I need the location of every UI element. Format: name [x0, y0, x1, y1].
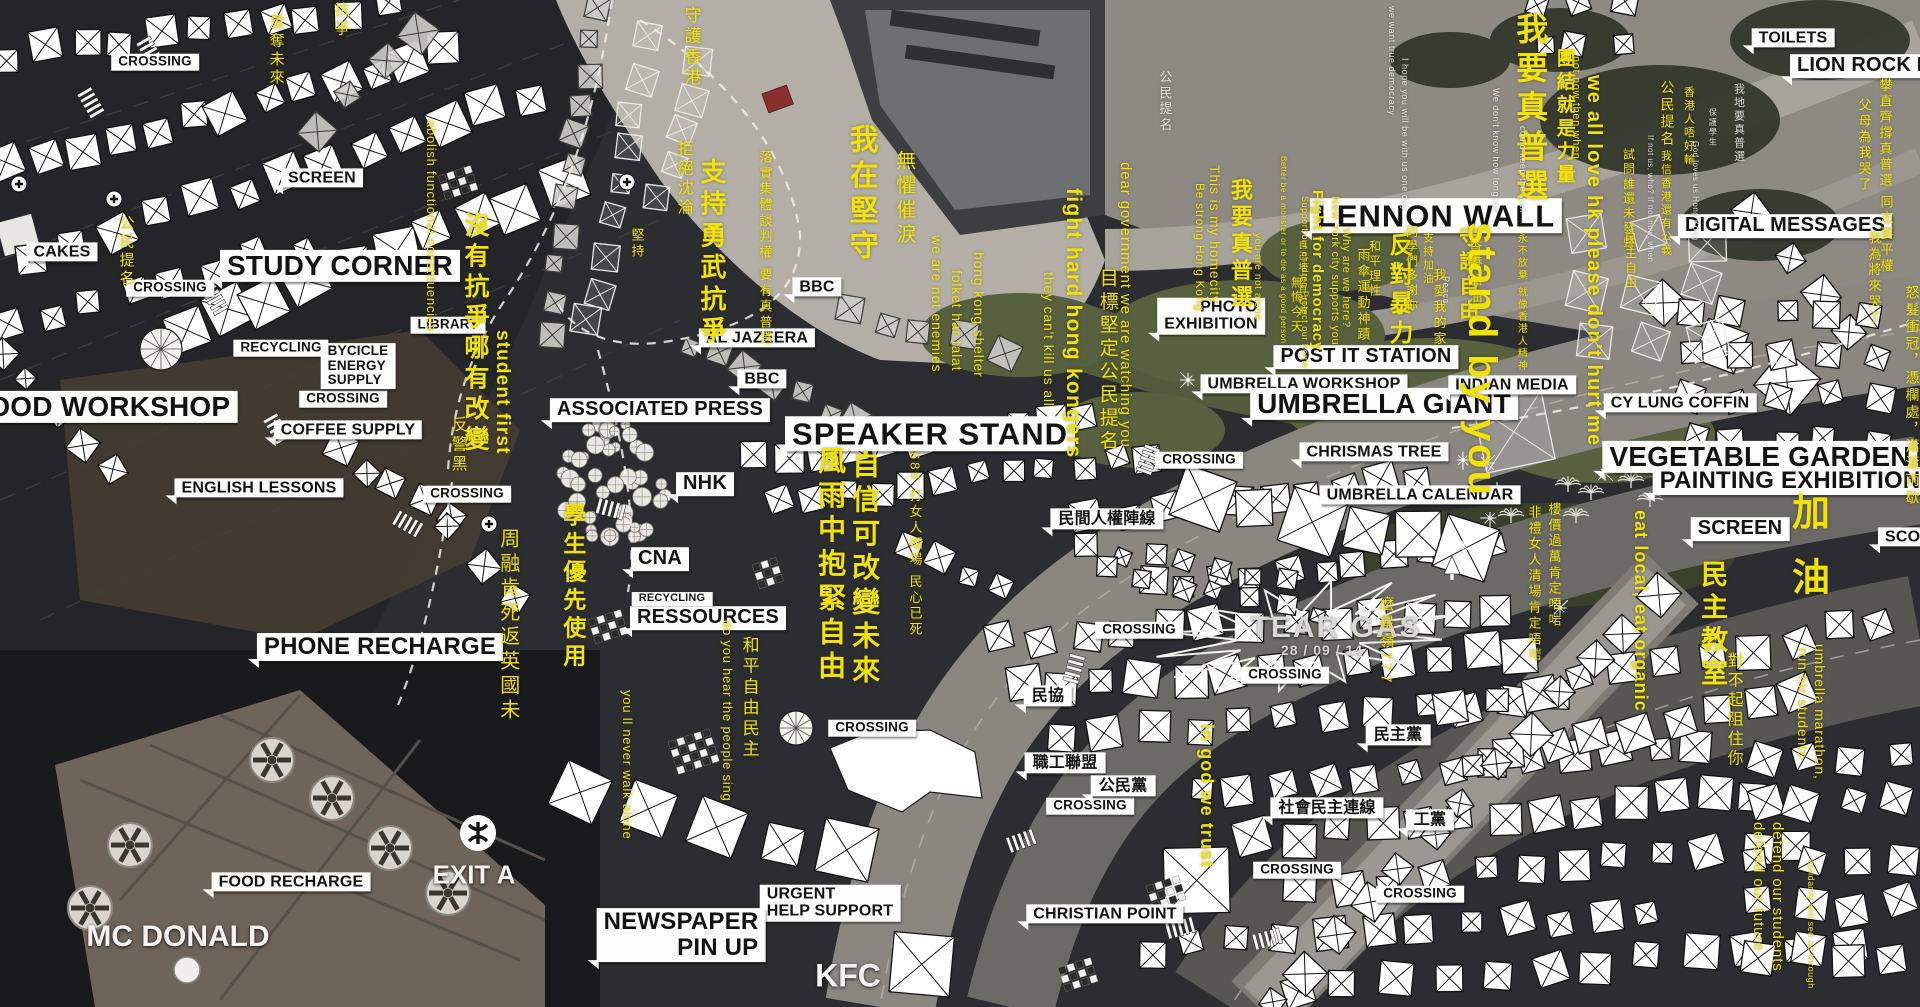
tent-icon — [322, 429, 360, 467]
tent-icon — [1097, 556, 1118, 577]
tent-icon — [1140, 942, 1167, 969]
tent-icon — [1210, 558, 1232, 580]
tent-icon — [553, 223, 580, 250]
supplies-icon — [752, 557, 784, 589]
tent-icon — [1089, 669, 1113, 693]
tent-icon — [1791, 931, 1827, 967]
tent-icon — [875, 313, 899, 337]
tent-icon — [806, 438, 840, 472]
tent-icon — [278, 253, 333, 308]
zebra-crossing-icon — [1006, 829, 1037, 853]
tent-icon — [1132, 569, 1151, 588]
tent-icon — [1589, 898, 1624, 933]
tent-icon — [1862, 609, 1895, 642]
zebra-crossing-icon — [595, 498, 626, 521]
tent-icon — [616, 102, 642, 128]
rooftop-fan-icon — [310, 776, 354, 820]
tent-icon — [1687, 833, 1726, 872]
tent-icon — [40, 305, 67, 332]
tent-icon — [1794, 887, 1829, 922]
tent-icon — [95, 211, 139, 255]
tent-icon — [1856, 302, 1882, 328]
tent-icon — [1339, 551, 1366, 578]
tent-icon — [1122, 658, 1162, 698]
first-aid-icon — [481, 516, 497, 532]
tent-icon — [897, 472, 924, 499]
tent-icon — [906, 320, 930, 344]
tent-icon — [591, 243, 620, 272]
tent-icon — [262, 150, 307, 195]
tent-icon — [1620, 275, 1661, 316]
umbrella-art-icon — [569, 493, 586, 510]
tent-icon — [1362, 460, 1400, 498]
tent-icon — [1283, 868, 1317, 902]
palm-tree-icon — [1618, 473, 1644, 488]
tent-icon — [1331, 473, 1362, 504]
tent-icon — [1650, 646, 1681, 677]
tent-icon — [967, 460, 990, 483]
tent-icon — [1742, 848, 1767, 873]
tent-icon — [1318, 701, 1350, 733]
tent-icon — [894, 531, 924, 561]
tent-icon — [1876, 944, 1907, 975]
tent-icon — [1864, 344, 1891, 371]
protest-camp-map: TEAR GAS 28 / 09 / 14 CROSSINGCROSSINGCR… — [0, 0, 1920, 1007]
tent-icon — [15, 243, 47, 275]
palm-tree-icon — [1578, 485, 1604, 500]
tent-icon — [1566, 213, 1606, 253]
map-symbols — [0, 0, 1920, 1007]
first-aid-icon — [106, 191, 122, 207]
tent-icon — [303, 144, 344, 185]
tent-icon — [1744, 886, 1772, 914]
tent-icon — [1432, 689, 1468, 725]
tent-icon — [48, 406, 71, 429]
tent-icon — [122, 276, 150, 304]
tent-icon — [1462, 912, 1482, 932]
tent-icon — [545, 254, 563, 272]
tent-icon — [1033, 458, 1054, 479]
tent-icon — [1105, 444, 1130, 469]
umbrella-art-icon — [653, 494, 668, 509]
rooftop-fan-icon — [108, 823, 152, 867]
tent-icon — [958, 566, 979, 587]
tent-icon — [1146, 544, 1167, 565]
tent-icon — [705, 338, 733, 366]
umbrella-art-icon — [656, 478, 667, 489]
tent-icon — [1579, 952, 1612, 985]
tent-icon — [1558, 849, 1591, 882]
tent-icon — [1600, 842, 1626, 868]
tent-icon — [1887, 844, 1919, 876]
tent-icon — [1577, 323, 1613, 359]
big-umbrella-icon — [779, 711, 813, 745]
tent-icon — [1475, 856, 1498, 879]
tent-icon — [835, 294, 865, 324]
tent-icon — [1699, 642, 1726, 669]
palm-tree-icon — [1563, 508, 1589, 523]
tent-icon — [1035, 404, 1068, 437]
tent-icon — [1005, 663, 1043, 701]
tent-icon — [1631, 322, 1670, 361]
tent-icon — [255, 83, 285, 113]
supplies-icon — [588, 609, 628, 643]
umbrella-art-icon — [633, 487, 652, 506]
tent-icon — [569, 95, 592, 118]
tent-icon — [1781, 784, 1820, 823]
tent-icon — [1817, 380, 1843, 406]
tent-icon — [1257, 653, 1286, 682]
rooftop-fan-icon — [368, 826, 412, 870]
tent-icon — [142, 118, 174, 150]
tent-icon — [928, 466, 958, 496]
tent-icon — [1276, 568, 1298, 590]
sparkle-icon — [1598, 466, 1613, 480]
tent-icon — [1024, 626, 1057, 659]
tent-icon — [1630, 215, 1667, 252]
red-canopy — [762, 85, 793, 113]
rooftop-fan-icon — [250, 738, 294, 782]
tent-icon — [548, 760, 613, 825]
umbrella-art-icon — [586, 530, 598, 542]
tent-icon — [685, 795, 748, 858]
tent-icon — [1684, 423, 1709, 448]
umbrella-art-icon — [571, 452, 587, 468]
tent-icon — [1169, 464, 1237, 532]
tent-icon — [792, 381, 814, 403]
tent-icon — [1811, 426, 1834, 449]
tent-icon — [1362, 696, 1393, 727]
tent-icon — [1282, 824, 1317, 859]
supplies-icon — [1058, 957, 1098, 991]
tent-icon — [1483, 961, 1512, 990]
tent-icon — [1611, 0, 1640, 16]
tent-icon — [515, 85, 547, 117]
tent-icon — [761, 822, 806, 867]
tent-icon — [500, 583, 531, 614]
sparkle-icon — [1457, 452, 1474, 470]
tent-icon — [1537, 37, 1555, 55]
tent-icon — [1791, 742, 1820, 771]
tent-icon — [180, 177, 219, 216]
tent-icon — [1736, 635, 1771, 670]
rooftop-vent-icon — [174, 957, 200, 983]
tent-icon — [334, 2, 362, 30]
tent-icon — [202, 90, 248, 136]
umbrella-art-icon — [636, 444, 654, 462]
tent-icon — [1426, 646, 1452, 672]
tent-icon — [1776, 671, 1818, 713]
tent-icon — [1500, 637, 1538, 675]
tent-icon — [1825, 610, 1854, 639]
tent-icon — [740, 441, 767, 468]
tent-icon — [757, 370, 787, 400]
tent-icon — [1499, 900, 1536, 937]
tent-icon — [923, 541, 957, 575]
tent-icon — [1775, 243, 1806, 274]
tent-icon — [1528, 795, 1567, 834]
tent-icon — [187, 16, 211, 40]
tent-icon — [75, 29, 101, 55]
palm-tree-icon — [1555, 477, 1581, 492]
tent-icon — [727, 350, 762, 385]
tent-icon — [836, 430, 870, 464]
tent-icon — [675, 84, 709, 118]
tent-icon — [1226, 708, 1251, 733]
tent-icon — [867, 430, 896, 459]
tent-icon — [1572, 717, 1609, 754]
tent-icon — [815, 818, 880, 883]
tent-icon — [680, 337, 700, 357]
tent-icon — [1560, 31, 1586, 57]
big-umbrella-icon — [140, 328, 182, 370]
tent-icon — [1841, 787, 1868, 814]
tent-icon — [1727, 342, 1753, 368]
tent-icon — [558, 118, 589, 149]
tent-icon — [339, 246, 370, 277]
tent-icon — [633, 21, 662, 50]
tent-icon — [1085, 714, 1123, 752]
umbrella-art-icon — [582, 424, 595, 437]
tent-icon — [1403, 467, 1431, 495]
tent-icon — [1317, 561, 1339, 583]
tent-icon — [1882, 881, 1919, 918]
umbrella-art-icon — [604, 530, 616, 542]
tent-icon — [539, 322, 566, 349]
zebra-crossing-icon — [1063, 653, 1086, 684]
tent-icon — [986, 335, 1023, 372]
tent-icon — [976, 418, 1001, 443]
palm-tree-icon — [1637, 492, 1663, 507]
tent-icon — [1778, 301, 1798, 321]
tent-icon — [1731, 192, 1772, 233]
umbrella-art-icon — [640, 523, 654, 537]
tent-icon — [871, 483, 894, 506]
sparkle-icon — [1552, 600, 1567, 615]
tent-icon — [1463, 630, 1502, 669]
tent-icon — [229, 179, 260, 210]
tent-icon — [1681, 263, 1722, 304]
tent-icon — [1564, 0, 1591, 16]
tent-icon — [1187, 720, 1213, 746]
tent-icon — [643, 184, 669, 210]
rooftop-fan-icon — [68, 886, 112, 930]
tent-icon — [983, 620, 1015, 652]
tent-icon — [1688, 224, 1726, 262]
umbrella-art-icon — [616, 517, 631, 532]
tent-icon — [1716, 428, 1744, 456]
tent-icon — [797, 485, 826, 514]
tent-icon — [1418, 860, 1451, 893]
tent-icon — [1324, 814, 1350, 840]
tent-icon — [107, 32, 132, 57]
tent-icon — [291, 6, 319, 34]
palm-tree-icon — [1498, 508, 1524, 523]
tent-icon — [1565, 271, 1608, 314]
umbrella-art-icon — [571, 477, 586, 492]
supplies-icon — [668, 729, 719, 775]
tent-icon — [1835, 746, 1865, 776]
tent-icon — [1224, 925, 1248, 949]
tent-icon — [1879, 781, 1914, 816]
main-stage — [830, 730, 982, 812]
tent-icon — [1546, 910, 1574, 938]
tent-icon — [1047, 724, 1075, 752]
sparkle-icon — [1180, 372, 1195, 387]
tent-icon — [1766, 339, 1797, 370]
tent-icon — [1745, 686, 1779, 720]
tent-icon — [889, 932, 954, 997]
tent-icon — [1740, 941, 1775, 976]
umbrella-art-icon — [588, 468, 602, 482]
tent-icon — [1864, 431, 1891, 458]
tent-icon — [1832, 945, 1865, 978]
tent-icon — [1117, 505, 1143, 531]
tent-icon — [988, 573, 1014, 599]
tent-icon — [0, 49, 18, 72]
tent-icon — [409, 483, 442, 516]
zebra-crossing-icon — [263, 413, 291, 445]
tent-icon — [584, 0, 611, 21]
tent-icon — [1397, 759, 1423, 785]
tent-icon — [1697, 775, 1733, 811]
tent-icon — [1074, 533, 1097, 556]
tent-icon — [1068, 498, 1103, 533]
tent-icon — [1395, 511, 1441, 557]
tent-icon — [1782, 625, 1817, 660]
tent-icon — [1632, 941, 1659, 968]
tent-icon — [375, 0, 402, 16]
tent-icon — [1172, 549, 1195, 572]
tent-icon — [1206, 654, 1247, 695]
tent-icon — [1813, 301, 1841, 329]
tent-icon — [1328, 970, 1354, 996]
tent-icon — [838, 402, 873, 437]
tent-icon — [1865, 383, 1896, 414]
tent-icon — [1139, 710, 1171, 742]
tent-icon — [466, 548, 502, 584]
tent-icon — [0, 307, 25, 340]
tent-icon — [1746, 741, 1783, 778]
rooftop-fan-icon — [426, 871, 470, 915]
tent-icon — [239, 236, 267, 264]
tent-icon — [28, 27, 63, 62]
tent-icon — [1436, 965, 1463, 992]
tent-icon — [1683, 933, 1720, 970]
tent-icon — [1378, 960, 1414, 996]
tent-icon — [1517, 855, 1546, 884]
tent-icon — [1652, 842, 1674, 864]
tent-icon — [224, 9, 254, 39]
tent-icon — [1532, 949, 1571, 988]
tent-icon — [105, 124, 137, 156]
sparkle-icon — [1489, 482, 1507, 499]
tent-icon — [372, 226, 422, 276]
tent-icon — [424, 99, 472, 147]
tent-icon — [464, 84, 507, 127]
tent-icon — [1231, 815, 1273, 857]
tent-icon — [1654, 777, 1690, 813]
first-aid-icon — [619, 174, 635, 190]
tent-icon — [1240, 588, 1259, 607]
tent-icon — [1723, 389, 1748, 414]
tent-icon — [1044, 673, 1078, 707]
tent-icon — [1074, 458, 1097, 481]
tent-icon — [1008, 413, 1029, 434]
tent-icon — [1613, 34, 1634, 55]
zebra-crossing-icon — [77, 87, 105, 119]
tent-icon — [389, 116, 427, 154]
tent-icon — [200, 260, 227, 287]
tent-icon — [1615, 786, 1649, 820]
tent-icon — [1486, 689, 1509, 712]
umbrella-art-icon — [584, 511, 596, 523]
tent-icon — [1703, 695, 1732, 724]
tent-icon — [1367, 807, 1400, 840]
tent-icon — [666, 114, 697, 145]
tent-icon — [1525, 0, 1549, 17]
tent-icon — [141, 196, 171, 226]
tent-icon — [1776, 432, 1799, 455]
tent-icon — [285, 71, 316, 102]
supplies-icon — [438, 165, 478, 199]
tent-icon — [1073, 622, 1103, 652]
tent-icon — [1191, 778, 1213, 800]
tent-icon — [28, 139, 64, 175]
tent-icon — [351, 132, 388, 169]
tent-icon — [76, 290, 101, 315]
tent-icon — [580, 30, 597, 47]
umbrella-art-icon — [622, 427, 637, 442]
tent-icon — [1677, 299, 1705, 327]
tent-icon — [260, 3, 293, 36]
tent-icon — [1889, 743, 1913, 767]
tent-icon — [619, 779, 679, 839]
mtr-station-icon — [460, 815, 496, 851]
tent-icon — [1003, 460, 1025, 482]
tent-icon — [1235, 489, 1273, 527]
zebra-crossing-icon — [392, 510, 424, 538]
tent-icon — [950, 320, 980, 350]
tent-icon — [14, 367, 37, 390]
umbrella-art-icon — [607, 477, 623, 493]
tent-icon — [1270, 702, 1297, 729]
tent-icon — [1490, 803, 1522, 835]
tent-icon — [1444, 601, 1471, 628]
tent-icon — [933, 419, 962, 448]
tent-icon — [626, 63, 660, 97]
tent-icon — [615, 133, 642, 160]
tent-icon — [1844, 848, 1871, 875]
tent-icon — [764, 484, 795, 515]
first-aid-icon — [11, 176, 27, 192]
tent-icon — [57, 230, 86, 259]
tent-icon — [1108, 621, 1134, 647]
umbrella-art-icon — [587, 436, 605, 454]
tent-icon — [839, 480, 857, 498]
first-aid-icon — [1281, 391, 1297, 407]
tent-icon — [1308, 763, 1343, 798]
tent-icon — [1480, 595, 1511, 626]
tent-icon — [98, 454, 128, 484]
tent-icon — [600, 202, 626, 228]
tent-icon — [1834, 893, 1869, 928]
tent-icon — [1245, 569, 1261, 585]
tent-icon — [903, 428, 935, 460]
tent-icon — [661, 152, 688, 179]
tent-icon — [1348, 764, 1379, 795]
tent-icon — [1343, 647, 1372, 676]
